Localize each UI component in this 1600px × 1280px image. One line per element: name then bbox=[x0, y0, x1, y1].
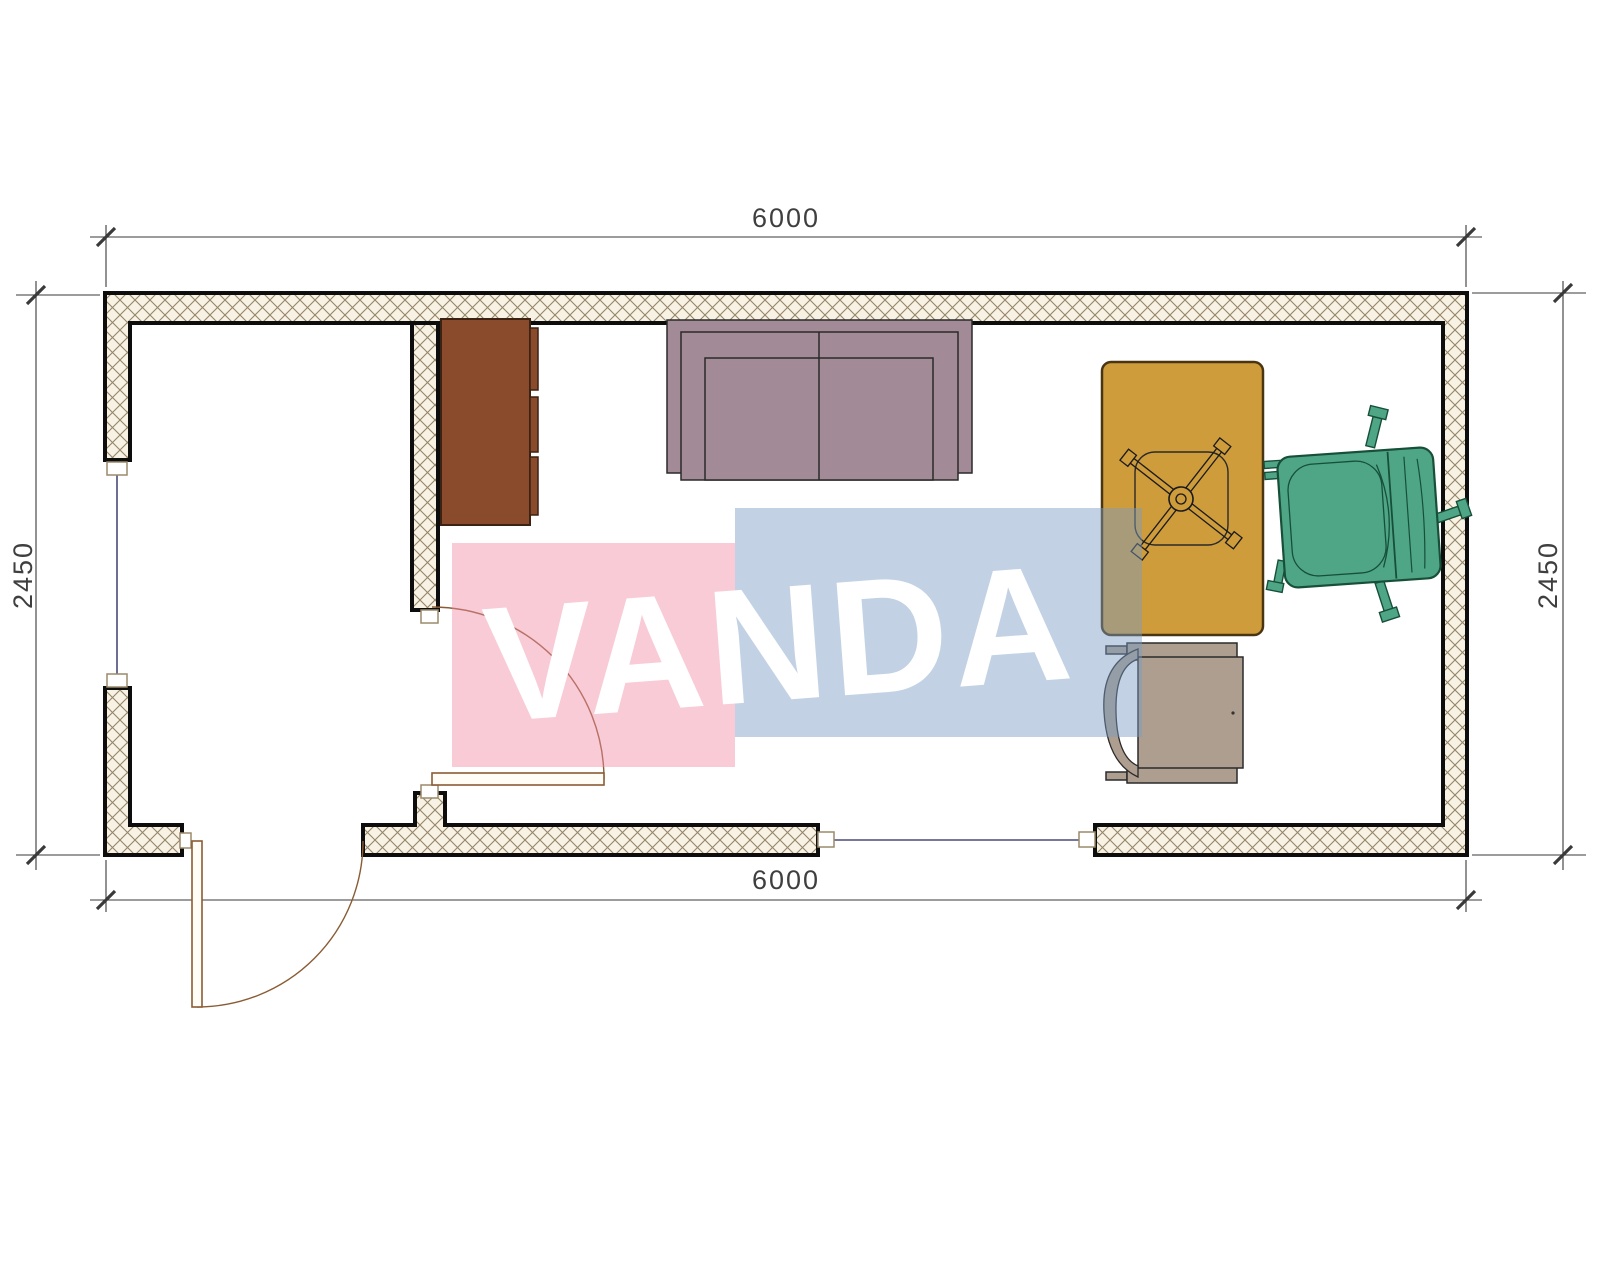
dim-label-bottom: 6000 bbox=[752, 865, 820, 895]
cabinet-body bbox=[441, 319, 530, 525]
exterior-wall-bottom-left bbox=[105, 688, 182, 855]
exterior-wall-bottom-middle bbox=[363, 793, 818, 855]
dim-label-left: 2450 bbox=[8, 541, 38, 609]
dim-label-top: 6000 bbox=[752, 203, 820, 233]
caster bbox=[1361, 406, 1388, 449]
sofa bbox=[667, 320, 972, 480]
interior-partition-wall bbox=[412, 323, 438, 610]
door-jambs bbox=[180, 610, 438, 848]
entry-door-leaf bbox=[192, 841, 202, 1007]
dim-ext-line bbox=[106, 225, 1466, 287]
cabinet bbox=[441, 319, 538, 525]
jamb bbox=[1079, 832, 1095, 847]
cabinet-front bbox=[530, 457, 538, 515]
jamb bbox=[107, 462, 127, 475]
interior-door-leaf bbox=[432, 773, 604, 785]
jamb bbox=[180, 833, 191, 848]
jamb bbox=[421, 610, 438, 623]
entry-door-swing-arc bbox=[197, 841, 363, 1007]
dim-ext-line bbox=[1472, 293, 1586, 855]
dim-label-right: 2450 bbox=[1533, 541, 1563, 609]
jamb bbox=[818, 832, 834, 847]
jamb bbox=[107, 674, 127, 687]
cabinet-front bbox=[530, 328, 538, 390]
caster bbox=[1370, 579, 1399, 622]
watermark: VANDA bbox=[452, 508, 1142, 767]
armchair-mark bbox=[1231, 711, 1234, 714]
armchair-leg bbox=[1106, 772, 1127, 780]
floor-plan-drawing: 6000 6000 2450 2450 bbox=[0, 0, 1600, 1280]
jamb bbox=[421, 785, 438, 798]
floor-plan-canvas: 6000 6000 2450 2450 bbox=[0, 0, 1600, 1280]
cabinet-front bbox=[530, 397, 538, 452]
armchair-seat bbox=[1138, 657, 1243, 768]
